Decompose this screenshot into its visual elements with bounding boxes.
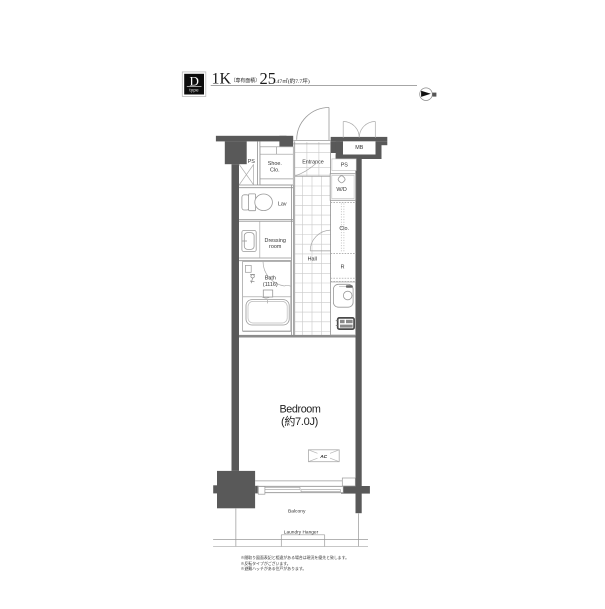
svg-text:Clo.: Clo. — [339, 226, 349, 232]
svg-text:type: type — [189, 87, 199, 92]
svg-text:〔専有面積〕: 〔専有面積〕 — [231, 77, 260, 84]
svg-text:MB: MB — [355, 145, 363, 151]
svg-text:Bedroom: Bedroom — [279, 404, 320, 416]
svg-text:25: 25 — [260, 69, 277, 88]
svg-text:W/D: W/D — [336, 187, 347, 193]
svg-text:AC: AC — [319, 454, 327, 460]
svg-text:Hall: Hall — [308, 256, 317, 262]
svg-text:※間取り図面表記と相違がある場合は現況を優先と致します。: ※間取り図面表記と相違がある場合は現況を優先と致します。 — [241, 555, 350, 560]
svg-text:Laundry Hanger: Laundry Hanger — [284, 529, 319, 535]
svg-text:PS: PS — [248, 159, 256, 165]
svg-text:Balcony: Balcony — [288, 509, 306, 515]
svg-text:Shoe.: Shoe. — [268, 161, 282, 167]
svg-text:Clo.: Clo. — [270, 168, 280, 174]
svg-text:D: D — [190, 73, 199, 88]
svg-text:(1116): (1116) — [263, 282, 278, 288]
svg-text:(約7.0J): (約7.0J) — [281, 414, 318, 428]
svg-text:1K: 1K — [212, 71, 232, 88]
svg-text:.47㎡(約7.7坪): .47㎡(約7.7坪) — [275, 77, 310, 85]
svg-text:※避難ハッチがある住戸があります。: ※避難ハッチがある住戸があります。 — [241, 566, 307, 571]
svg-text:Dressing: Dressing — [265, 238, 286, 244]
svg-text:Entrance: Entrance — [302, 159, 324, 165]
svg-text:R: R — [341, 265, 345, 271]
svg-text:Lav: Lav — [278, 202, 287, 208]
svg-text:Bath: Bath — [265, 275, 276, 281]
svg-text:room: room — [269, 244, 282, 250]
svg-text:PS: PS — [341, 163, 349, 169]
